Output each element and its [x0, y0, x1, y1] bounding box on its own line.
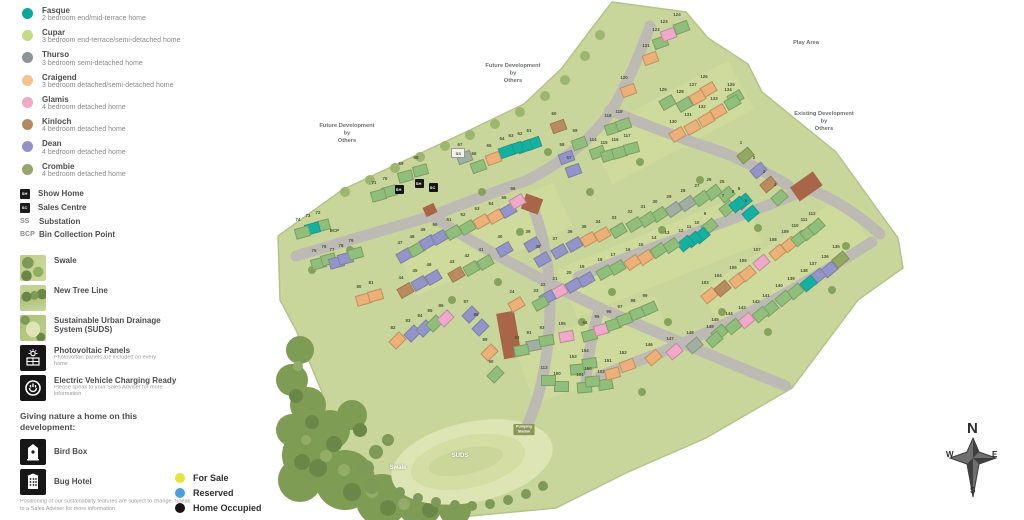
nature-item-label: Bird Box — [54, 439, 87, 457]
plot-number-150: 150 — [583, 367, 594, 371]
house-type-color-dot — [22, 75, 33, 86]
plot-number-40: 40 — [495, 235, 506, 239]
plot-house-92[interactable] — [513, 343, 530, 356]
site-marker-ss: SS — [451, 148, 465, 158]
plot-number-145: 145 — [710, 318, 721, 322]
plot-number-29: 29 — [664, 195, 675, 199]
plot-number-52: 52 — [458, 213, 469, 217]
nature-item-label: Bug Hotel — [54, 469, 92, 487]
plot-number-25: 25 — [717, 180, 728, 184]
house-type-color-dot — [22, 8, 33, 19]
plot-number-3: 3 — [759, 170, 770, 174]
plot-number-12: 12 — [676, 229, 687, 233]
house-type-description: 3 bedroom semi-detached home — [42, 60, 143, 68]
plot-number-46: 46 — [424, 263, 435, 267]
plot-number-87: 87 — [461, 300, 472, 304]
plot-number-142: 142 — [751, 300, 762, 304]
map-label-swale: Swale — [343, 464, 453, 472]
plot-number-146: 146 — [644, 343, 655, 347]
plot-number-107: 107 — [752, 248, 763, 252]
plot-number-55: 55 — [499, 196, 510, 200]
plot-number-68: 68 — [411, 156, 422, 160]
plot-number-120: 120 — [619, 76, 630, 80]
plot-number-96: 96 — [604, 310, 615, 314]
plot-number-119: 119 — [614, 110, 625, 114]
plot-number-78: 78 — [336, 244, 347, 248]
plot-number-53: 53 — [472, 207, 483, 211]
plot-number-148: 148 — [685, 331, 696, 335]
plot-number-88: 88 — [471, 313, 482, 317]
house-type-dean: Dean4 bedroom detached home — [20, 139, 270, 156]
plot-number-149: 149 — [705, 325, 716, 329]
plot-number-89: 89 — [480, 338, 491, 342]
plot-number-135: 135 — [831, 245, 842, 249]
plot-number-34: 34 — [593, 220, 604, 224]
plot-number-152: 152 — [618, 351, 629, 355]
map-legend: Fasque2 bedroom end/mid-terrace homeCupa… — [20, 6, 270, 514]
nature-heading: Giving nature a home on this development… — [20, 411, 170, 433]
plot-number-106: 106 — [738, 259, 749, 263]
plot-number-121: 121 — [641, 44, 652, 48]
plot-number-97: 97 — [615, 305, 626, 309]
site-marker-bcp: BCP — [330, 228, 339, 233]
compass-south-label: S — [970, 486, 975, 495]
plot-number-113: 113 — [539, 366, 550, 370]
marker-label: Sales Centre — [38, 203, 86, 212]
plot-number-86: 86 — [436, 304, 447, 308]
house-type-cupar: Cupar3 bedroom end-terrace/semi-detached… — [20, 28, 270, 45]
plot-number-130: 130 — [668, 120, 679, 124]
plot-number-27: 27 — [692, 184, 703, 188]
house-type-name: Crombie — [42, 162, 126, 171]
plot-number-57: 57 — [564, 156, 575, 160]
plot-number-137: 137 — [808, 262, 819, 266]
plot-number-85: 85 — [425, 309, 436, 313]
house-type-description: 4 bedroom detached home — [42, 104, 126, 112]
plot-number-90: 90 — [486, 360, 497, 364]
legend-disclaimer: Positioning of our sustainability featur… — [20, 499, 195, 513]
plot-number-80: 80 — [354, 285, 365, 289]
plot-number-13: 13 — [662, 231, 673, 235]
feature-swale: Swale — [20, 255, 270, 281]
plot-number-56: 56 — [508, 187, 519, 191]
plot-house-150[interactable] — [584, 375, 600, 387]
pv-icon — [20, 345, 46, 371]
feature-note: Photovoltaic panels are included on ever… — [54, 355, 164, 368]
house-type-name: Dean — [42, 139, 126, 148]
site-marker-sc[interactable]: SC — [429, 183, 438, 192]
compass-east-label: E — [992, 450, 997, 459]
house-type-description: 3 bedroom end-terrace/semi-detached home — [42, 37, 181, 45]
plot-number-144: 144 — [724, 312, 735, 316]
plot-number-155: 155 — [557, 322, 568, 326]
feature-sustainable-urban-drainage-system-suds-: Sustainable Urban Drainage System (SUDS) — [20, 315, 270, 341]
plot-number-39: 39 — [523, 230, 534, 234]
marker-label: Bin Collection Point — [39, 230, 115, 239]
plot-number-33: 33 — [609, 216, 620, 220]
house-type-color-dot — [22, 119, 33, 130]
plot-number-8: 8 — [728, 190, 739, 194]
plot-number-132: 132 — [697, 105, 708, 109]
plot-number-153: 153 — [568, 355, 579, 359]
plot-number-143: 143 — [737, 306, 748, 310]
feature-label: Swale — [54, 255, 184, 266]
sc-badge-icon: SC — [20, 203, 30, 213]
plot-number-103: 103 — [700, 281, 711, 285]
house-type-name: Fasque — [42, 6, 146, 15]
plot-number-123: 123 — [659, 20, 670, 24]
plot-number-131: 131 — [683, 113, 694, 117]
plot-number-9: 9 — [700, 212, 711, 216]
plot-number-154: 154 — [580, 349, 591, 353]
plot-number-42: 42 — [462, 254, 473, 258]
feature-note: Please speak to your Sales Adviser for m… — [54, 385, 164, 398]
plot-number-15: 15 — [636, 243, 647, 247]
plot-number-105: 105 — [728, 266, 739, 270]
house-type-thurso: Thurso3 bedroom semi-detached home — [20, 50, 270, 67]
plot-number-108: 108 — [768, 238, 779, 242]
house-type-name: Cupar — [42, 28, 181, 37]
marker-legend-sh: SHShow Home — [20, 189, 270, 199]
plot-number-43: 43 — [447, 260, 458, 264]
marker-label: Substation — [39, 217, 80, 226]
plot-number-117: 117 — [622, 134, 633, 138]
plot-number-16: 16 — [623, 248, 634, 252]
suds-thumbnail — [20, 315, 46, 341]
house-type-name: Kinloch — [42, 117, 126, 126]
plot-number-109: 109 — [780, 230, 791, 234]
plot-number-133: 133 — [709, 97, 720, 101]
feature-label: New Tree Line — [54, 285, 184, 296]
feature-electric-vehicle-charging-ready: Electric Vehicle Charging ReadyPlease sp… — [20, 375, 270, 401]
status-label: For Sale — [193, 473, 229, 483]
status-color-dot — [175, 503, 185, 513]
bug-hotel-icon — [20, 469, 46, 495]
nature-item-bird-box: Bird Box — [20, 439, 270, 465]
plot-number-50: 50 — [430, 223, 441, 227]
plot-number-37: 37 — [550, 237, 561, 241]
status-for-sale: For Sale — [175, 473, 262, 483]
plot-number-98: 98 — [628, 299, 639, 303]
marker-legend-bcp: BCPBin Collection Point — [20, 230, 270, 239]
bcp-code-label: BCP — [20, 231, 38, 238]
house-type-color-dot — [22, 52, 33, 63]
plot-number-66: 66 — [469, 152, 480, 156]
feature-legend: SwaleNew Tree LineSustainable Urban Drai… — [20, 255, 270, 401]
plot-number-1: 1 — [736, 141, 747, 145]
plot-number-99: 99 — [640, 294, 651, 298]
plot-number-60: 60 — [549, 112, 560, 116]
house-type-craigend: Craigend3 bedroom detached/semi-detached… — [20, 73, 270, 90]
plot-number-124: 124 — [672, 13, 683, 17]
house-type-crombie: Crombie4 bedroom detached home — [20, 162, 270, 179]
plot-number-47: 47 — [395, 241, 406, 245]
plot-number-84: 84 — [415, 314, 426, 318]
marker-label: Show Home — [38, 189, 84, 198]
plot-number-136: 136 — [820, 255, 831, 259]
plot-number-30: 30 — [650, 200, 661, 204]
plot-number-22: 22 — [538, 283, 549, 287]
map-label-play-area: Play Area — [754, 39, 859, 47]
plot-number-18: 18 — [595, 258, 606, 262]
plot-number-65: 65 — [484, 144, 495, 148]
plot-number-147: 147 — [665, 337, 676, 341]
plot-number-4: 4 — [770, 183, 781, 187]
plot-number-93: 93 — [537, 326, 548, 330]
ss-code-label: SS — [20, 218, 38, 225]
house-type-kinloch: Kinloch4 bedroom detached home — [20, 117, 270, 134]
plot-number-111: 111 — [799, 218, 810, 222]
house-type-name: Glamis — [42, 95, 126, 104]
plot-number-19: 19 — [577, 265, 588, 269]
plot-number-26: 26 — [704, 178, 715, 182]
house-type-description: 4 bedroom detached home — [42, 126, 126, 134]
plot-number-114: 114 — [588, 138, 599, 142]
marker-legend-sc: SCSales Centre — [20, 203, 270, 213]
status-color-dot — [175, 473, 185, 483]
plot-number-81: 81 — [366, 281, 377, 285]
status-label: Reserved — [193, 488, 234, 498]
feature-label: Sustainable Urban Drainage System (SUDS) — [54, 315, 184, 335]
plot-number-122: 122 — [651, 28, 662, 32]
plot-number-134: 134 — [723, 88, 734, 92]
status-color-dot — [175, 488, 185, 498]
house-type-legend: Fasque2 bedroom end/mid-terrace homeCupa… — [20, 6, 270, 179]
swale-thumbnail — [20, 255, 46, 281]
plot-number-44: 44 — [396, 276, 407, 280]
house-type-color-dot — [22, 164, 33, 175]
plot-number-6: 6 — [741, 199, 752, 203]
plot-number-141: 141 — [761, 294, 772, 298]
plot-number-101: 101 — [575, 373, 586, 377]
plot-number-17: 17 — [608, 253, 619, 257]
marker-legend: SHShow HomeSCSales CentreSSSubstationBCP… — [20, 189, 270, 239]
house-type-glamis: Glamis4 bedroom detached home — [20, 95, 270, 112]
plot-number-94: 94 — [580, 321, 591, 325]
plot-number-140: 140 — [774, 284, 785, 288]
status-home-occupied: Home Occupied — [175, 503, 262, 513]
house-type-name: Craigend — [42, 73, 174, 82]
house-type-fasque: Fasque2 bedroom end/mid-terrace home — [20, 6, 270, 23]
plot-number-35: 35 — [579, 225, 590, 229]
plot-number-83: 83 — [403, 319, 414, 323]
plot-number-151: 151 — [603, 359, 614, 363]
plot-number-51: 51 — [444, 218, 455, 222]
house-type-color-dot — [22, 97, 33, 108]
plot-number-110: 110 — [790, 224, 801, 228]
plot-number-59: 59 — [570, 129, 581, 133]
plot-number-138: 138 — [799, 269, 810, 273]
plot-number-112: 112 — [807, 212, 818, 216]
marker-legend-ss: SSSubstation — [20, 217, 270, 226]
house-type-color-dot — [22, 30, 33, 41]
map-label-existing-development: Existing DevelopmentbyOthers — [772, 110, 877, 133]
plot-number-104: 104 — [713, 274, 724, 278]
status-reserved: Reserved — [175, 488, 262, 498]
plot-number-24: 24 — [507, 290, 518, 294]
plot-number-45: 45 — [410, 269, 421, 273]
plot-number-118: 118 — [603, 114, 614, 118]
plot-number-36: 36 — [565, 230, 576, 234]
plot-number-69: 69 — [396, 162, 407, 166]
plot-number-75: 75 — [309, 249, 320, 253]
plot-number-79: 79 — [346, 239, 357, 243]
plot-number-58: 58 — [557, 143, 568, 147]
plot-number-77: 77 — [327, 248, 338, 252]
house-type-name: Thurso — [42, 50, 143, 59]
plot-number-20: 20 — [564, 271, 575, 275]
plot-number-129: 129 — [658, 88, 669, 92]
map-label-suds: SUDS — [405, 452, 515, 460]
sh-badge-icon: SH — [20, 189, 30, 199]
site-marker-sh[interactable]: SH — [395, 185, 404, 194]
plot-number-7: 7 — [718, 194, 729, 198]
site-plan-page: 1234567891011121314151617181920212223242… — [0, 0, 1024, 520]
plot-number-100: 100 — [552, 372, 563, 376]
plot-number-23: 23 — [531, 289, 542, 293]
plot-number-49: 49 — [418, 228, 429, 232]
plot-number-73: 73 — [303, 214, 314, 218]
plot-number-67: 67 — [455, 143, 466, 147]
plot-number-14: 14 — [649, 236, 660, 240]
map-label-future-development: Future DevelopmentbyOthers — [295, 122, 400, 145]
plot-number-74: 74 — [293, 218, 304, 222]
feature-new-tree-line: New Tree Line — [20, 285, 270, 311]
plot-number-91: 91 — [524, 331, 535, 335]
house-type-description: 2 bedroom end/mid-terrace home — [42, 15, 146, 23]
plot-house-93[interactable] — [538, 333, 555, 346]
feature-label: Photovoltaic Panels — [54, 345, 184, 356]
compass-rose: N E S W — [928, 420, 1024, 515]
plot-number-72: 72 — [313, 211, 324, 215]
map-label-future-development: Future DevelopmentbyOthers — [461, 62, 566, 85]
plot-number-2: 2 — [749, 156, 760, 160]
plot-number-82: 82 — [388, 326, 399, 330]
plot-number-48: 48 — [407, 235, 418, 239]
plot-number-92: 92 — [512, 336, 523, 340]
plot-number-95: 95 — [592, 315, 603, 319]
plot-number-128: 128 — [675, 90, 686, 94]
map-label-pumping: PumpingStation — [513, 424, 534, 435]
plot-number-102: 102 — [596, 370, 607, 374]
tree-line-thumbnail — [20, 285, 46, 311]
house-type-description: 4 bedroom detached home — [42, 171, 126, 179]
ev-icon — [20, 375, 46, 401]
feature-label: Electric Vehicle Charging Ready — [54, 375, 184, 386]
status-legend: For SaleReservedHome Occupied — [175, 473, 262, 518]
site-marker-sh[interactable]: SH — [415, 179, 424, 188]
house-type-description: 3 bedroom detached/semi-detached home — [42, 82, 174, 90]
plot-number-54: 54 — [486, 202, 497, 206]
plot-number-71: 71 — [369, 181, 380, 185]
compass-north-label: N — [967, 420, 978, 437]
plot-house-100[interactable] — [554, 381, 569, 392]
plot-number-38: 38 — [533, 245, 544, 249]
plot-number-70: 70 — [380, 177, 391, 181]
plot-house-155[interactable] — [558, 329, 575, 342]
plot-number-139: 139 — [786, 277, 797, 281]
plot-number-31: 31 — [638, 205, 649, 209]
status-label: Home Occupied — [193, 503, 262, 513]
plot-number-32: 32 — [625, 210, 636, 214]
house-type-color-dot — [22, 141, 33, 152]
plot-number-127: 127 — [688, 83, 699, 87]
house-type-description: 4 bedroom detached home — [42, 149, 126, 157]
plot-number-21: 21 — [550, 277, 561, 281]
bird-box-icon — [20, 439, 46, 465]
compass-west-label: W — [946, 450, 954, 459]
plot-number-126: 126 — [699, 75, 710, 79]
plot-number-116: 116 — [610, 138, 621, 142]
plot-number-41: 41 — [476, 248, 487, 252]
plot-number-28: 28 — [678, 189, 689, 193]
feature-photovoltaic-panels: Photovoltaic PanelsPhotovoltaic panels a… — [20, 345, 270, 371]
plot-number-64: 64 — [497, 137, 508, 141]
plot-number-115: 115 — [599, 141, 610, 145]
